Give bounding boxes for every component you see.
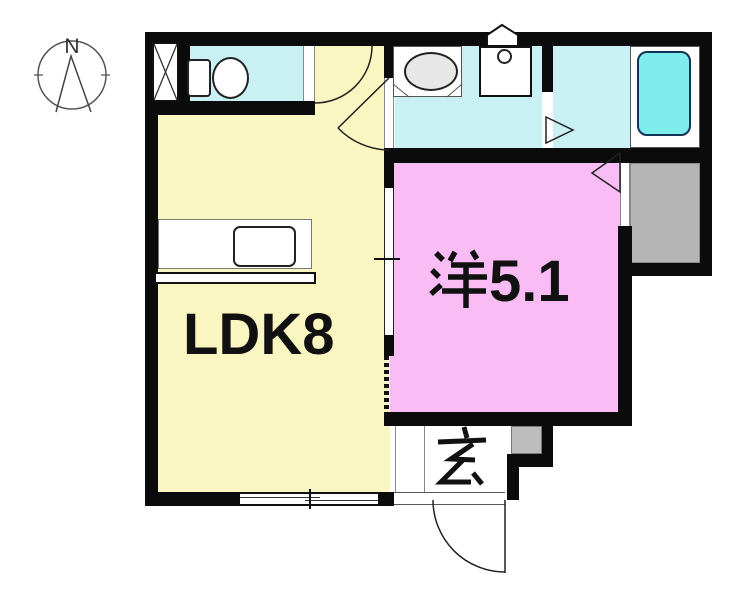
wall-right xyxy=(700,32,712,276)
wall-wash-bath xyxy=(542,46,553,92)
closet-x-icon xyxy=(154,44,177,100)
compass-circle xyxy=(38,41,106,109)
entrance-threshold xyxy=(393,492,505,505)
wall-genkan-1 xyxy=(542,424,553,456)
wall-ldk-lower xyxy=(384,335,394,356)
room-ldk-upper xyxy=(315,46,385,116)
closet xyxy=(152,42,179,102)
window xyxy=(240,492,385,506)
ldk-label: LDK8 xyxy=(183,306,334,364)
wall-storage-bottom xyxy=(618,263,712,276)
wall-western-bottom xyxy=(384,412,632,426)
window-line xyxy=(240,492,385,494)
wall-toilet-bottom xyxy=(145,101,315,115)
entrance-door-arc-icon xyxy=(433,500,505,573)
wall-genkan-2 xyxy=(507,454,553,467)
western-size-label: 5.1 xyxy=(489,253,570,311)
wall-horizontal-mid xyxy=(384,148,712,163)
sliding-door xyxy=(384,188,394,335)
window-pane-line xyxy=(305,500,385,501)
entry-corridor-strip xyxy=(395,426,425,492)
wall-top xyxy=(145,32,712,46)
western-door-gap xyxy=(620,163,630,228)
compass-needle-icon xyxy=(56,56,91,112)
storage-area xyxy=(630,163,700,263)
sliding-door-tick xyxy=(374,258,400,260)
wall-bottom-stub xyxy=(378,492,394,506)
room-bath-hall xyxy=(553,46,630,148)
toilet-tank xyxy=(187,59,211,97)
compass-n: N xyxy=(64,35,79,58)
bath-door-gap xyxy=(542,90,553,148)
kanji-gen-icon xyxy=(438,427,486,484)
dashed-partition xyxy=(384,356,389,412)
bathtub xyxy=(637,51,691,136)
window-line xyxy=(240,504,385,506)
wall-western-right xyxy=(618,226,632,412)
kitchen-sink xyxy=(233,226,296,267)
washer-faucet-icon xyxy=(497,49,512,64)
floor-plan: N LDK8 5.1 xyxy=(0,0,738,600)
toilet-door-gap xyxy=(303,46,315,102)
window-pane-line xyxy=(240,497,320,498)
counter-bar xyxy=(154,272,316,284)
wall-ldk-bottom xyxy=(145,492,240,506)
vanity-sink xyxy=(404,52,458,91)
wall-genkan-3 xyxy=(507,467,519,500)
compass: N xyxy=(34,35,110,112)
toilet-bowl xyxy=(212,57,249,99)
step-box xyxy=(511,426,542,454)
window-tick xyxy=(309,489,311,509)
